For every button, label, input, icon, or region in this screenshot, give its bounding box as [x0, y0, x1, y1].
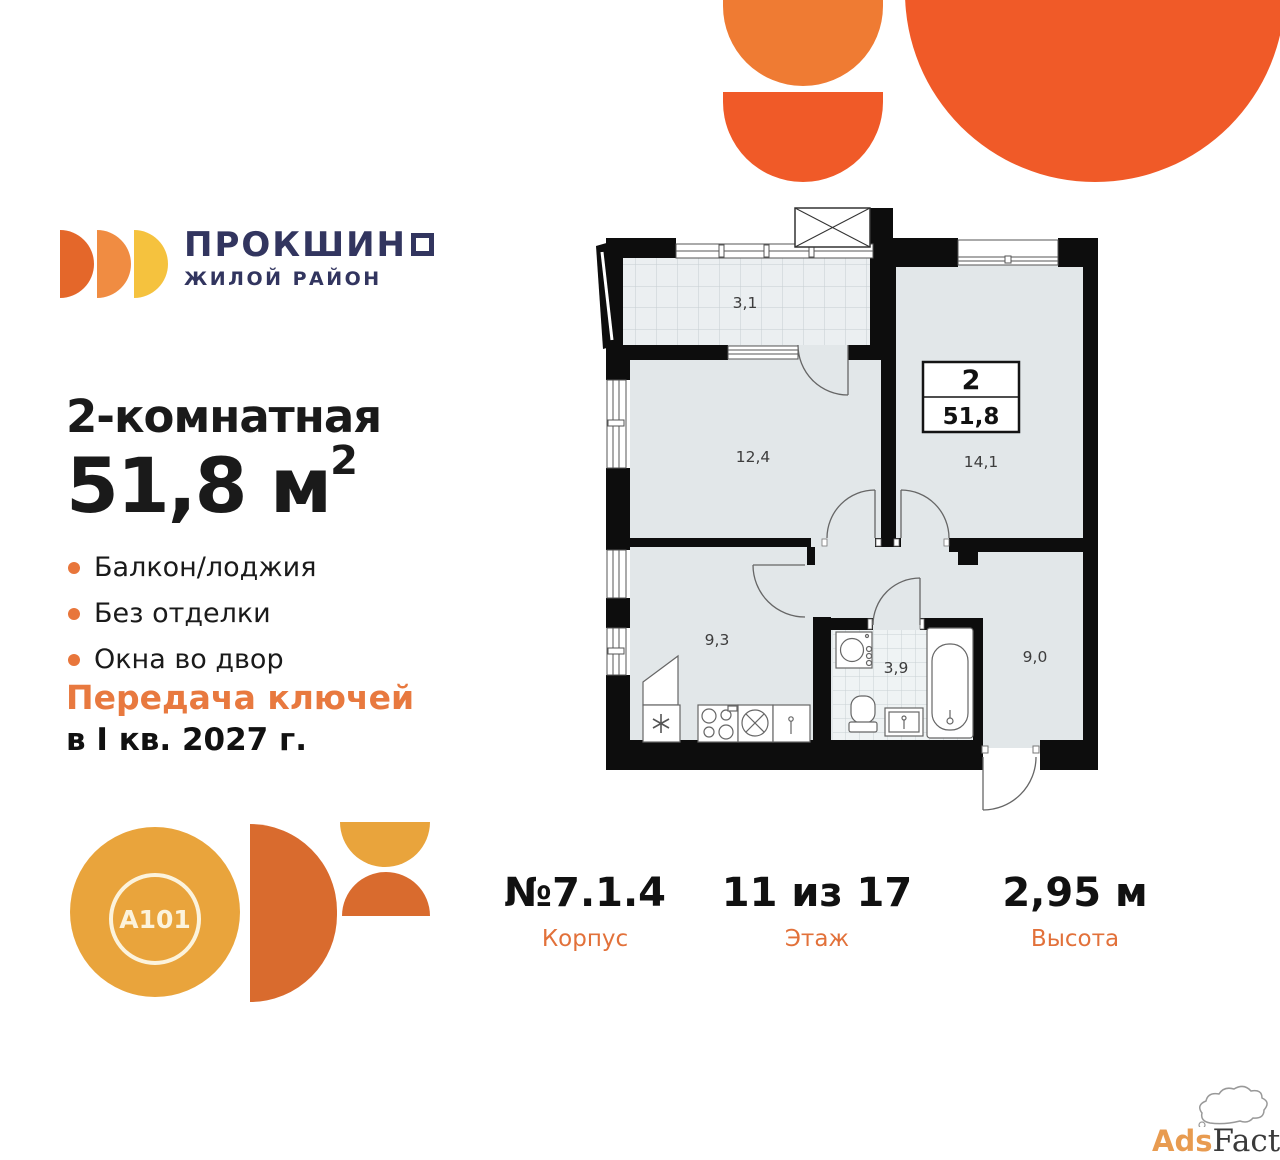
height-label: Высота: [945, 926, 1205, 952]
bullet-dot: [68, 654, 80, 666]
floor-plan: 2 51,8 3,1 12,4 14,1 9,3 3,9 9,0: [593, 200, 1105, 820]
a101-circle: A101: [70, 827, 240, 997]
detail-height: 2,95 м Высота: [945, 870, 1205, 952]
plan-info-box: 2 51,8: [923, 362, 1019, 432]
entrance-opening: [982, 740, 1040, 770]
listing-card: ПРОКШИН ЖИЛОЙ РАЙОН 2-комнатная 51,8 м2 …: [0, 0, 1280, 1160]
bullet-dot: [68, 562, 80, 574]
watermark-text: AdsFactory: [1152, 1123, 1280, 1159]
label-balcony: 3,1: [733, 294, 758, 312]
brand-logo-marks: [60, 228, 168, 298]
brand-subtitle: ЖИЛОЙ РАЙОН: [184, 268, 434, 290]
feature-item: Окна во двор: [68, 644, 316, 675]
a101-dome-shape: [342, 872, 430, 916]
detail-building: №7.1.4 Корпус: [455, 870, 715, 952]
decor-semicircle-small-top: [723, 0, 883, 86]
listing-title: 2-комнатная: [66, 390, 381, 443]
handover-line-1: Передача ключей: [66, 678, 414, 717]
watermark: AdsFactory: [1150, 1085, 1280, 1157]
plan-area-value: 51,8: [943, 404, 1000, 430]
toilet: [851, 696, 875, 723]
floor-label: Этаж: [687, 926, 947, 952]
plan-rooms-count: 2: [962, 365, 981, 396]
shaft-box: [795, 208, 870, 247]
logo-d-shape-3: [134, 230, 168, 298]
area-exponent: 2: [330, 438, 358, 484]
a101-d-shape: [250, 824, 337, 1002]
label-living: 12,4: [736, 448, 771, 466]
listing-area: 51,8 м2: [66, 438, 358, 530]
building-number: №7.1.4: [455, 870, 715, 916]
decor-circle-large: [905, 0, 1280, 182]
building-label: Корпус: [455, 926, 715, 952]
a101-text: A101: [119, 905, 191, 934]
a101-ring: A101: [109, 873, 201, 965]
logo-d-shape-2: [97, 230, 131, 298]
watermark-factory: Factory: [1212, 1123, 1280, 1159]
decor-semicircle-small-bottom: [723, 92, 883, 182]
feature-item: Балкон/лоджия: [68, 552, 316, 583]
a101-bowl-shape: [340, 822, 430, 867]
label-bathroom: 3,9: [884, 659, 909, 677]
label-hallway: 9,0: [1023, 648, 1048, 666]
handover-line-2: в I кв. 2027 г.: [66, 722, 307, 758]
watermark-cloud-icon: [1180, 1085, 1280, 1127]
ceiling-height: 2,95 м: [945, 870, 1205, 916]
logo-d-shape-1: [60, 230, 94, 298]
feature-list: Балкон/лоджия Без отделки Окна во двор: [68, 552, 316, 690]
watermark-ads: Ads: [1152, 1124, 1212, 1158]
brand-name: ПРОКШИН: [184, 228, 434, 262]
bullet-dot: [68, 608, 80, 620]
brand-text-block: ПРОКШИН ЖИЛОЙ РАЙОН: [184, 228, 434, 290]
label-bedroom: 14,1: [964, 453, 999, 471]
brand-square-o: [411, 233, 434, 256]
developer-logo: A101: [70, 822, 435, 1004]
brand-logo: ПРОКШИН ЖИЛОЙ РАЙОН: [60, 228, 434, 298]
label-kitchen: 9,3: [705, 631, 730, 649]
feature-item: Без отделки: [68, 598, 316, 629]
detail-floor: 11 из 17 Этаж: [687, 870, 947, 952]
floor-number: 11 из 17: [687, 870, 947, 916]
